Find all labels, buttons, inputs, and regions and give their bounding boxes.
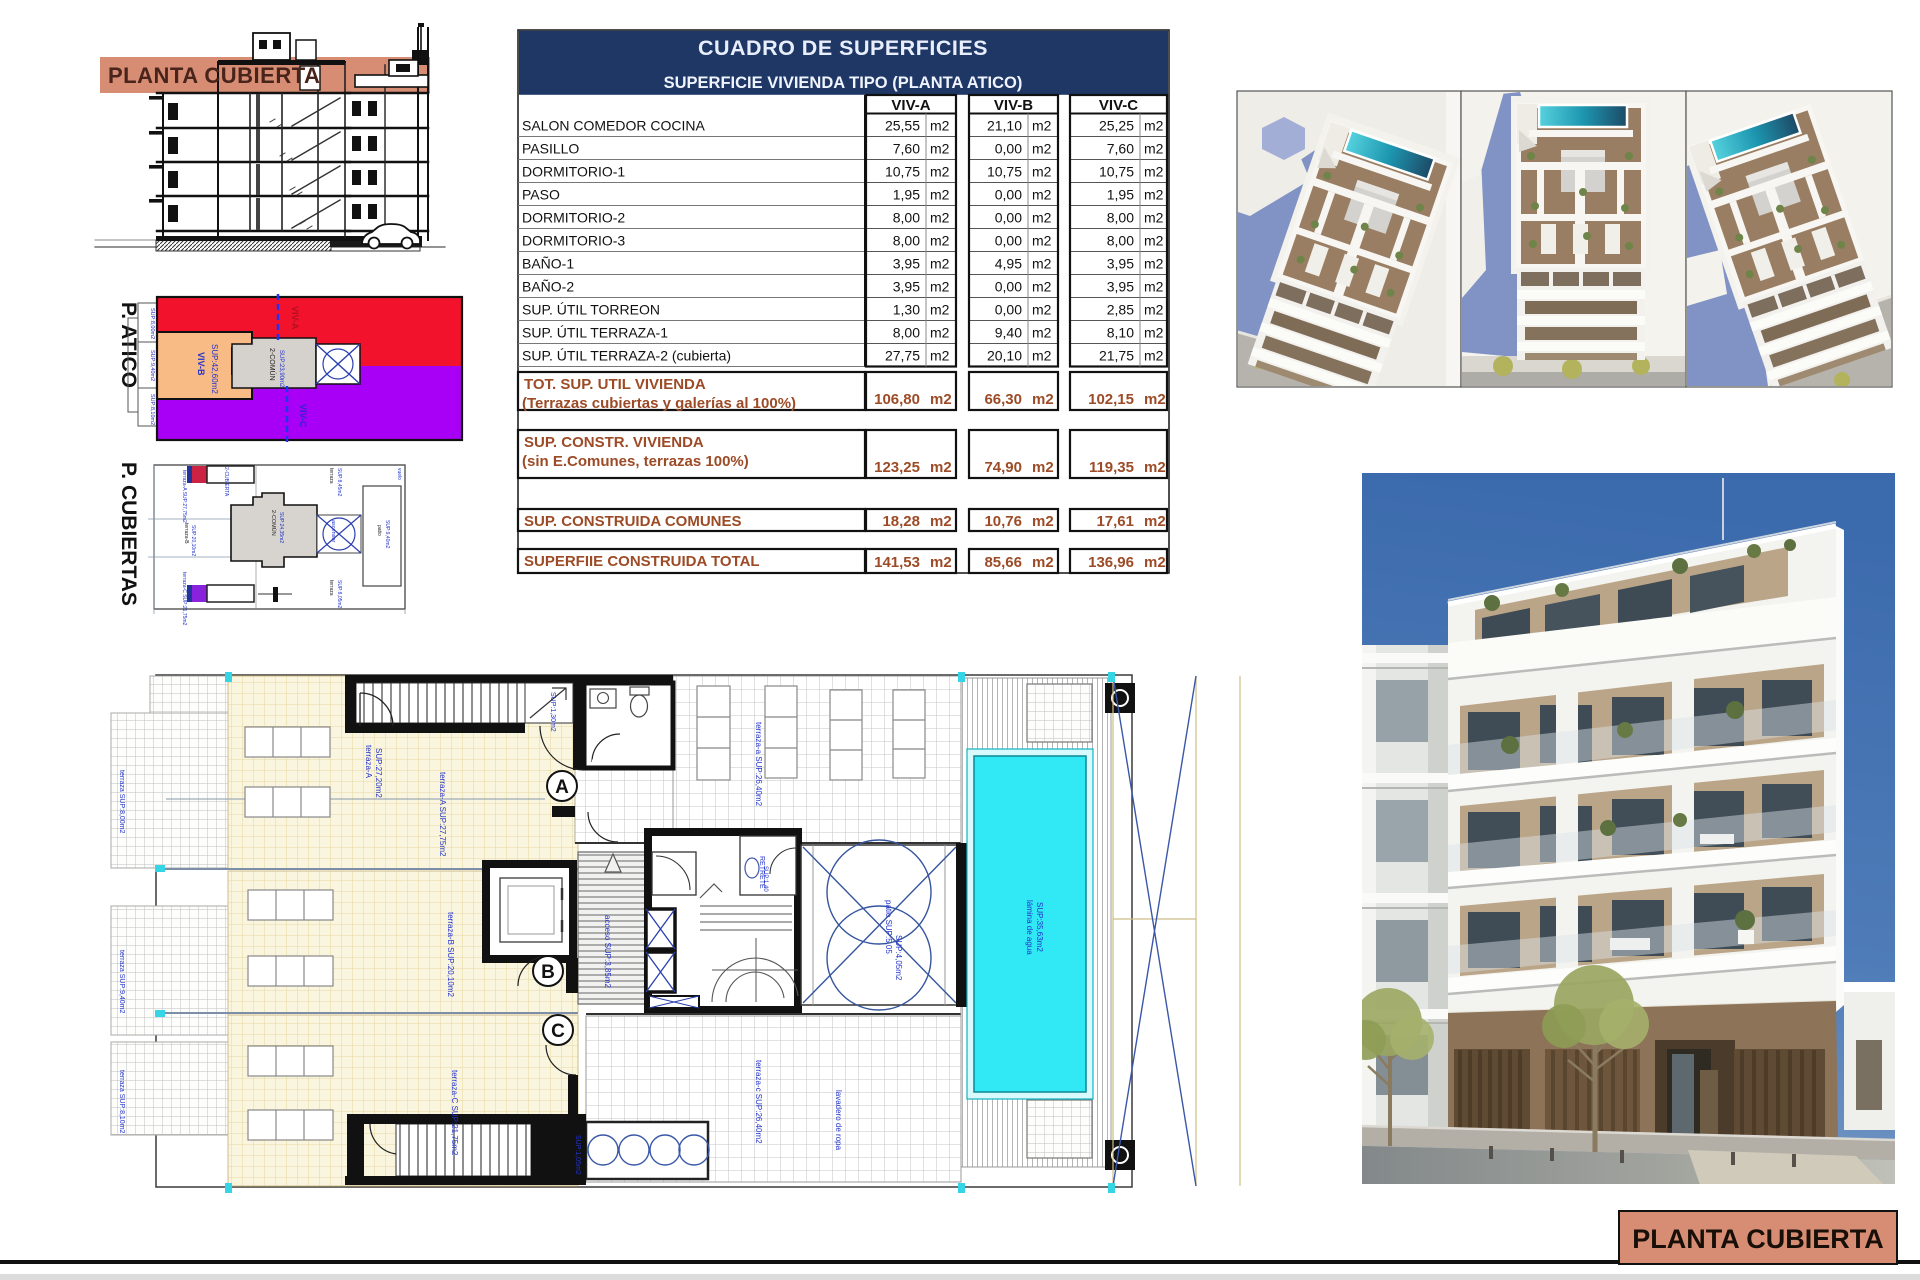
svg-text:8,00: 8,00 <box>893 233 920 249</box>
svg-text:PASO: PASO <box>522 187 560 203</box>
svg-text:m2: m2 <box>1032 302 1052 318</box>
svg-text:102,15: 102,15 <box>1088 391 1134 408</box>
svg-text:SUP:20,10m2: SUP:20,10m2 <box>190 525 196 556</box>
svg-text:m2: m2 <box>1144 325 1164 341</box>
svg-text:8,10: 8,10 <box>1107 325 1134 341</box>
svg-text:10,75: 10,75 <box>987 164 1022 180</box>
svg-text:m2: m2 <box>1032 459 1054 476</box>
svg-text:10,75: 10,75 <box>885 164 920 180</box>
svg-text:SUP. ÚTIL TORREON: SUP. ÚTIL TORREON <box>522 302 660 318</box>
svg-text:25,25: 25,25 <box>1099 118 1134 134</box>
svg-text:0,00: 0,00 <box>995 187 1022 203</box>
svg-text:25,55: 25,55 <box>885 118 920 134</box>
svg-text:m2: m2 <box>1144 141 1164 157</box>
svg-text:VIV-C: VIV-C <box>1099 97 1138 114</box>
svg-text:m2: m2 <box>1144 302 1164 318</box>
svg-text:SUP. ÚTIL TERRAZA-1: SUP. ÚTIL TERRAZA-1 <box>522 325 668 341</box>
svg-text:m2: m2 <box>1144 233 1164 249</box>
svg-text:SUP:8,00m2: SUP:8,00m2 <box>149 308 155 339</box>
svg-text:1,95: 1,95 <box>1107 187 1134 203</box>
svg-text:terraza-A SUP:27,75m2: terraza-A SUP:27,75m2 <box>438 772 447 857</box>
svg-text:0,00: 0,00 <box>995 233 1022 249</box>
svg-text:DORMITORIO-2: DORMITORIO-2 <box>522 210 625 226</box>
svg-text:SUPERFIIE CONSTRUIDA TOTAL: SUPERFIIE CONSTRUIDA TOTAL <box>524 553 760 570</box>
svg-text:m2: m2 <box>930 459 952 476</box>
svg-text:B: B <box>541 962 555 983</box>
svg-text:SUP:8,05m2: SUP:8,05m2 <box>336 580 342 609</box>
svg-text:m2: m2 <box>1144 256 1164 272</box>
svg-text:9,40: 9,40 <box>995 325 1022 341</box>
svg-text:DORMITORIO-3: DORMITORIO-3 <box>522 233 625 249</box>
svg-text:SUP:35,63m2: SUP:35,63m2 <box>1035 902 1044 952</box>
svg-text:terraza SUP:9,40m2: terraza SUP:9,40m2 <box>118 950 125 1014</box>
svg-text:m2: m2 <box>1144 187 1164 203</box>
svg-text:m2: m2 <box>930 325 950 341</box>
svg-text:m2: m2 <box>1144 391 1166 408</box>
svg-text:m2: m2 <box>930 210 950 226</box>
svg-text:17,61: 17,61 <box>1096 513 1134 530</box>
svg-text:m2: m2 <box>930 302 950 318</box>
svg-text:136,96: 136,96 <box>1088 554 1134 571</box>
svg-text:SUP. ÚTIL TERRAZA-2 (cubierta): SUP. ÚTIL TERRAZA-2 (cubierta) <box>522 348 731 364</box>
svg-text:4,95: 4,95 <box>995 256 1022 272</box>
svg-text:m2: m2 <box>1144 210 1164 226</box>
svg-text:106,80: 106,80 <box>874 391 920 408</box>
svg-text:terraza-A: terraza-A <box>364 745 373 779</box>
svg-text:0,00: 0,00 <box>995 210 1022 226</box>
svg-text:m2: m2 <box>1144 279 1164 295</box>
svg-text:SUP:24,35m2: SUP:24,35m2 <box>278 512 284 543</box>
svg-text:2-COMÚN: 2-COMÚN <box>268 348 277 381</box>
svg-text:m2: m2 <box>930 554 952 571</box>
svg-text:PLANTA CUBIERTA: PLANTA CUBIERTA <box>108 63 320 88</box>
svg-text:terraza SUP:8,00m2: terraza SUP:8,00m2 <box>118 770 125 834</box>
svg-text:SUP. CONSTR. VIVIENDA: SUP. CONSTR. VIVIENDA <box>524 434 704 451</box>
svg-text:10,76: 10,76 <box>984 513 1022 530</box>
svg-text:1,30: 1,30 <box>893 302 920 318</box>
svg-text:20,10: 20,10 <box>987 348 1022 364</box>
svg-text:m2: m2 <box>930 164 950 180</box>
svg-text:BAÑO-2: BAÑO-2 <box>522 279 574 295</box>
svg-text:terraza-a SUP:26,40m2: terraza-a SUP:26,40m2 <box>754 722 763 807</box>
svg-text:terraza: terraza <box>328 468 334 484</box>
svg-text:SALON COMEDOR COCINA: SALON COMEDOR COCINA <box>522 118 705 134</box>
svg-text:(Terrazas cubiertas y galerías: (Terrazas cubiertas y galerías al 100%) <box>522 395 796 412</box>
svg-text:m2: m2 <box>1144 459 1166 476</box>
svg-text:3,95: 3,95 <box>1107 256 1134 272</box>
svg-text:18,28: 18,28 <box>882 513 920 530</box>
svg-text:m2: m2 <box>1032 391 1054 408</box>
svg-text:8,00: 8,00 <box>1107 210 1134 226</box>
svg-text:8,00: 8,00 <box>1107 233 1134 249</box>
svg-text:SUP:8,45m2: SUP:8,45m2 <box>336 468 342 497</box>
svg-text:10,75: 10,75 <box>1099 164 1134 180</box>
svg-text:SUP:23,90m2: SUP:23,90m2 <box>278 350 284 388</box>
svg-text:0,00: 0,00 <box>995 302 1022 318</box>
svg-text:SUP:9,40m2: SUP:9,40m2 <box>149 350 155 381</box>
svg-text:74,90: 74,90 <box>984 459 1022 476</box>
svg-text:terraza SUP:8,10m2: terraza SUP:8,10m2 <box>118 1070 125 1134</box>
svg-text:lámina de agua: lámina de agua <box>1025 900 1034 955</box>
svg-text:123,25: 123,25 <box>874 459 920 476</box>
svg-text:2-COMÚN: 2-COMÚN <box>270 510 277 536</box>
svg-text:7,60: 7,60 <box>893 141 920 157</box>
svg-text:7,60: 7,60 <box>1107 141 1134 157</box>
svg-text:m2: m2 <box>1032 187 1052 203</box>
svg-text:21,75: 21,75 <box>1099 348 1134 364</box>
svg-text:SUP:9,40m2: SUP:9,40m2 <box>384 520 390 549</box>
svg-text:m2: m2 <box>1032 279 1052 295</box>
svg-text:m2: m2 <box>930 279 950 295</box>
svg-text:3,95: 3,95 <box>893 279 920 295</box>
svg-text:patio: patio <box>376 525 382 536</box>
svg-text:C: C <box>551 1021 565 1042</box>
svg-text:VIV-B: VIV-B <box>196 352 206 376</box>
svg-text:2,85: 2,85 <box>1107 302 1134 318</box>
svg-text:terraza-B: terraza-B <box>183 523 189 544</box>
svg-text:PASILLO: PASILLO <box>522 141 579 157</box>
svg-text:SUP:4,05m2: SUP:4,05m2 <box>894 935 903 981</box>
svg-text:m2: m2 <box>1144 554 1166 571</box>
svg-text:acceso SUP:3,85m2: acceso SUP:3,85m2 <box>603 915 612 988</box>
svg-text:m2: m2 <box>1032 554 1054 571</box>
svg-text:terraza: terraza <box>328 580 334 596</box>
svg-text:SUP:1,05m2: SUP:1,05m2 <box>574 1135 581 1175</box>
svg-text:VIV-B: VIV-B <box>994 97 1033 114</box>
svg-text:patio SUP:5,05: patio SUP:5,05 <box>884 900 893 954</box>
svg-text:141,53: 141,53 <box>874 554 920 571</box>
svg-text:3,95: 3,95 <box>893 256 920 272</box>
svg-text:m2: m2 <box>1144 348 1164 364</box>
svg-text:SUP. CONSTRUIDA COMUNES: SUP. CONSTRUIDA COMUNES <box>524 513 742 530</box>
svg-text:DORMITORIO-1: DORMITORIO-1 <box>522 164 625 180</box>
svg-text:m2: m2 <box>930 233 950 249</box>
svg-text:m2: m2 <box>930 256 950 272</box>
svg-text:m2: m2 <box>1032 513 1054 530</box>
svg-text:terraza-C SUP:21,75m2: terraza-C SUP:21,75m2 <box>181 572 187 626</box>
svg-text:m2: m2 <box>1144 164 1164 180</box>
svg-text:m2: m2 <box>1032 325 1052 341</box>
svg-text:m2: m2 <box>1032 348 1052 364</box>
svg-text:66,30: 66,30 <box>984 391 1022 408</box>
svg-text:SUP:42,60m2: SUP:42,60m2 <box>210 344 219 394</box>
svg-text:1,95: 1,95 <box>893 187 920 203</box>
svg-text:terraza-B SUP:20,10m2: terraza-B SUP:20,10m2 <box>446 912 455 997</box>
svg-text:27,75: 27,75 <box>885 348 920 364</box>
svg-text:2-CUBIERTA: 2-CUBIERTA <box>223 467 229 497</box>
svg-text:VIV-C: VIV-C <box>298 404 308 428</box>
svg-text:terraza-c SUP:26,40m2: terraza-c SUP:26,40m2 <box>754 1060 763 1144</box>
svg-text:0,00: 0,00 <box>995 141 1022 157</box>
svg-text:85,66: 85,66 <box>984 554 1022 571</box>
svg-text:8,00: 8,00 <box>893 325 920 341</box>
svg-text:m2: m2 <box>930 187 950 203</box>
svg-text:(sin E.Comunes, terrazas 100%): (sin E.Comunes, terrazas 100%) <box>522 453 749 470</box>
svg-text:ascensor: ascensor <box>330 520 336 542</box>
svg-text:lavadero de ropa: lavadero de ropa <box>834 1090 843 1151</box>
svg-text:119,35: 119,35 <box>1089 459 1134 476</box>
svg-text:3,95: 3,95 <box>1107 279 1134 295</box>
svg-text:m2: m2 <box>1032 141 1052 157</box>
svg-text:SUP:27,20m2: SUP:27,20m2 <box>374 748 383 798</box>
svg-text:m2: m2 <box>1032 256 1052 272</box>
svg-text:m2: m2 <box>1032 164 1052 180</box>
svg-text:m2: m2 <box>930 348 950 364</box>
svg-text:m2: m2 <box>1032 233 1052 249</box>
svg-text:SUP:1,30m2: SUP:1,30m2 <box>549 692 556 732</box>
svg-text:CUADRO DE SUPERFICIES: CUADRO DE SUPERFICIES <box>698 36 988 60</box>
svg-text:VIV-A: VIV-A <box>290 306 300 330</box>
svg-text:terraza-A SUP:27,75m2: terraza-A SUP:27,75m2 <box>181 470 187 523</box>
svg-text:terraza-C SUP:21,75m2: terraza-C SUP:21,75m2 <box>450 1070 459 1156</box>
svg-text:SUP:8,10m2: SUP:8,10m2 <box>149 394 155 425</box>
svg-text:21,10: 21,10 <box>987 118 1022 134</box>
svg-text:vuelo: vuelo <box>396 468 402 480</box>
svg-text:0,00: 0,00 <box>995 279 1022 295</box>
svg-text:A: A <box>555 777 569 798</box>
svg-text:m2: m2 <box>1144 118 1164 134</box>
svg-text:m2: m2 <box>930 118 950 134</box>
svg-text:VIV-A: VIV-A <box>891 97 930 114</box>
svg-text:m2: m2 <box>1032 210 1052 226</box>
svg-text:TOT. SUP. UTIL VIVIENDA: TOT. SUP. UTIL VIVIENDA <box>524 376 706 393</box>
svg-text:m2: m2 <box>1032 118 1052 134</box>
svg-text:m2: m2 <box>930 513 952 530</box>
svg-text:SUP:1,40: SUP:1,40 <box>762 866 768 892</box>
svg-text:m2: m2 <box>930 141 950 157</box>
svg-text:P. CUBIERTAS: P. CUBIERTAS <box>117 462 140 606</box>
svg-text:m2: m2 <box>930 391 952 408</box>
svg-text:PLANTA CUBIERTA: PLANTA CUBIERTA <box>1632 1224 1883 1254</box>
svg-text:SUPERFICIE VIVIENDA TIPO (PLA: SUPERFICIE VIVIENDA TIPO (PLANTA ATICO) <box>664 74 1023 92</box>
svg-text:8,00: 8,00 <box>893 210 920 226</box>
svg-text:m2: m2 <box>1144 513 1166 530</box>
svg-text:BAÑO-1: BAÑO-1 <box>522 256 574 272</box>
